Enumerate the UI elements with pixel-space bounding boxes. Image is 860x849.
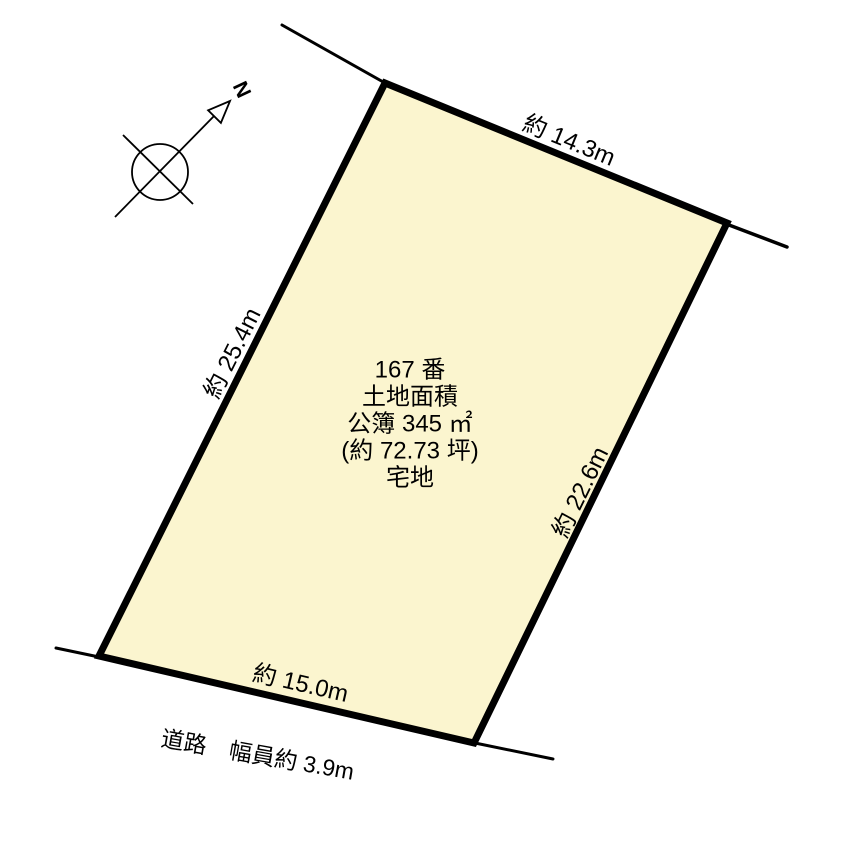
parcel-number-label: 167 番 (341, 357, 478, 384)
compass-cross-line (123, 135, 193, 204)
compass (115, 101, 230, 217)
diagram-canvas: N 約 14.3m 約 25.4m 約 22.6m 約 15.0m 167 番 … (0, 0, 860, 849)
land-area-heading-label: 土地面積 (341, 384, 478, 411)
registered-area-label: 公簿 345 ㎡ (341, 411, 478, 438)
area-tsubo-label: (約 72.73 坪) (341, 438, 478, 465)
compass-north-shaft-line (115, 114, 216, 217)
boundary-extension-line-top-left (282, 25, 385, 83)
road-extension-line-bottom-left (56, 648, 99, 657)
parcel-info-block: 167 番 土地面積 公簿 345 ㎡ (約 72.73 坪) 宅地 (341, 357, 478, 492)
road-extension-line-bottom-right (475, 743, 553, 759)
boundary-extension-line-top-right (729, 225, 787, 247)
land-category-label: 宅地 (341, 465, 478, 492)
